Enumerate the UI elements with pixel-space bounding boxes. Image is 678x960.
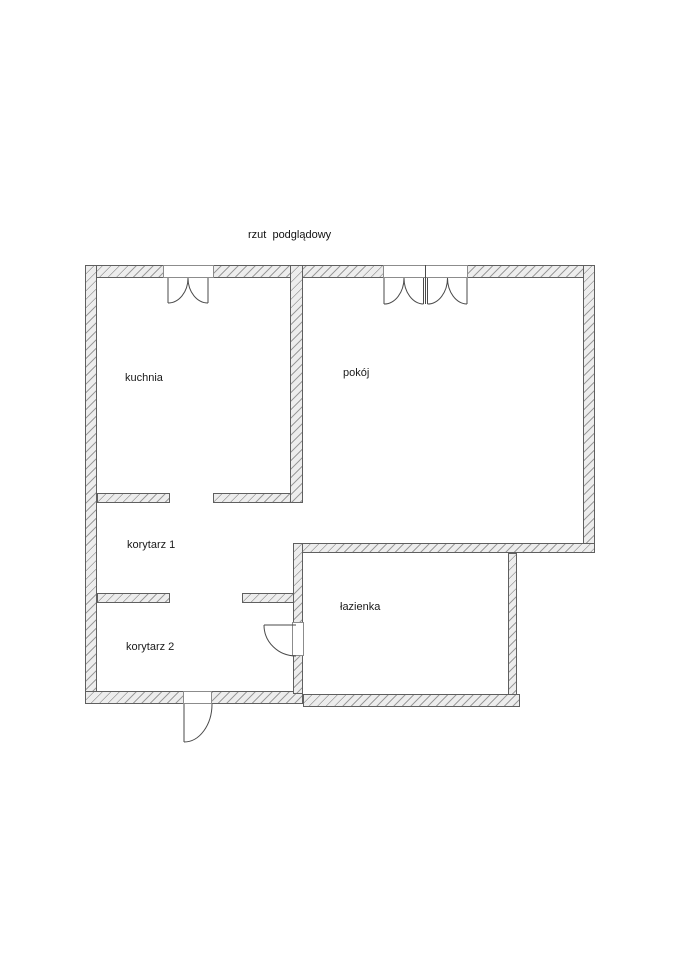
double-swing-door-icon-kuchnia [168,278,208,303]
floor-plan: rzut podglądowy [0,0,678,960]
room-label-korytarz-1: korytarz 1 [127,539,175,551]
room-label-kuchnia: kuchnia [125,372,163,384]
plan-title: rzut podglądowy [248,229,331,241]
double-swing-door-icon-pokoj [384,265,467,304]
room-label-pokoj: pokój [343,367,369,379]
room-label-lazienka: łazienka [340,601,380,613]
swing-door-icon-entrance [184,704,212,742]
swing-door-icon-lazienka [264,625,296,656]
door-symbols-layer [0,0,678,960]
room-label-korytarz-2: korytarz 2 [126,641,174,653]
